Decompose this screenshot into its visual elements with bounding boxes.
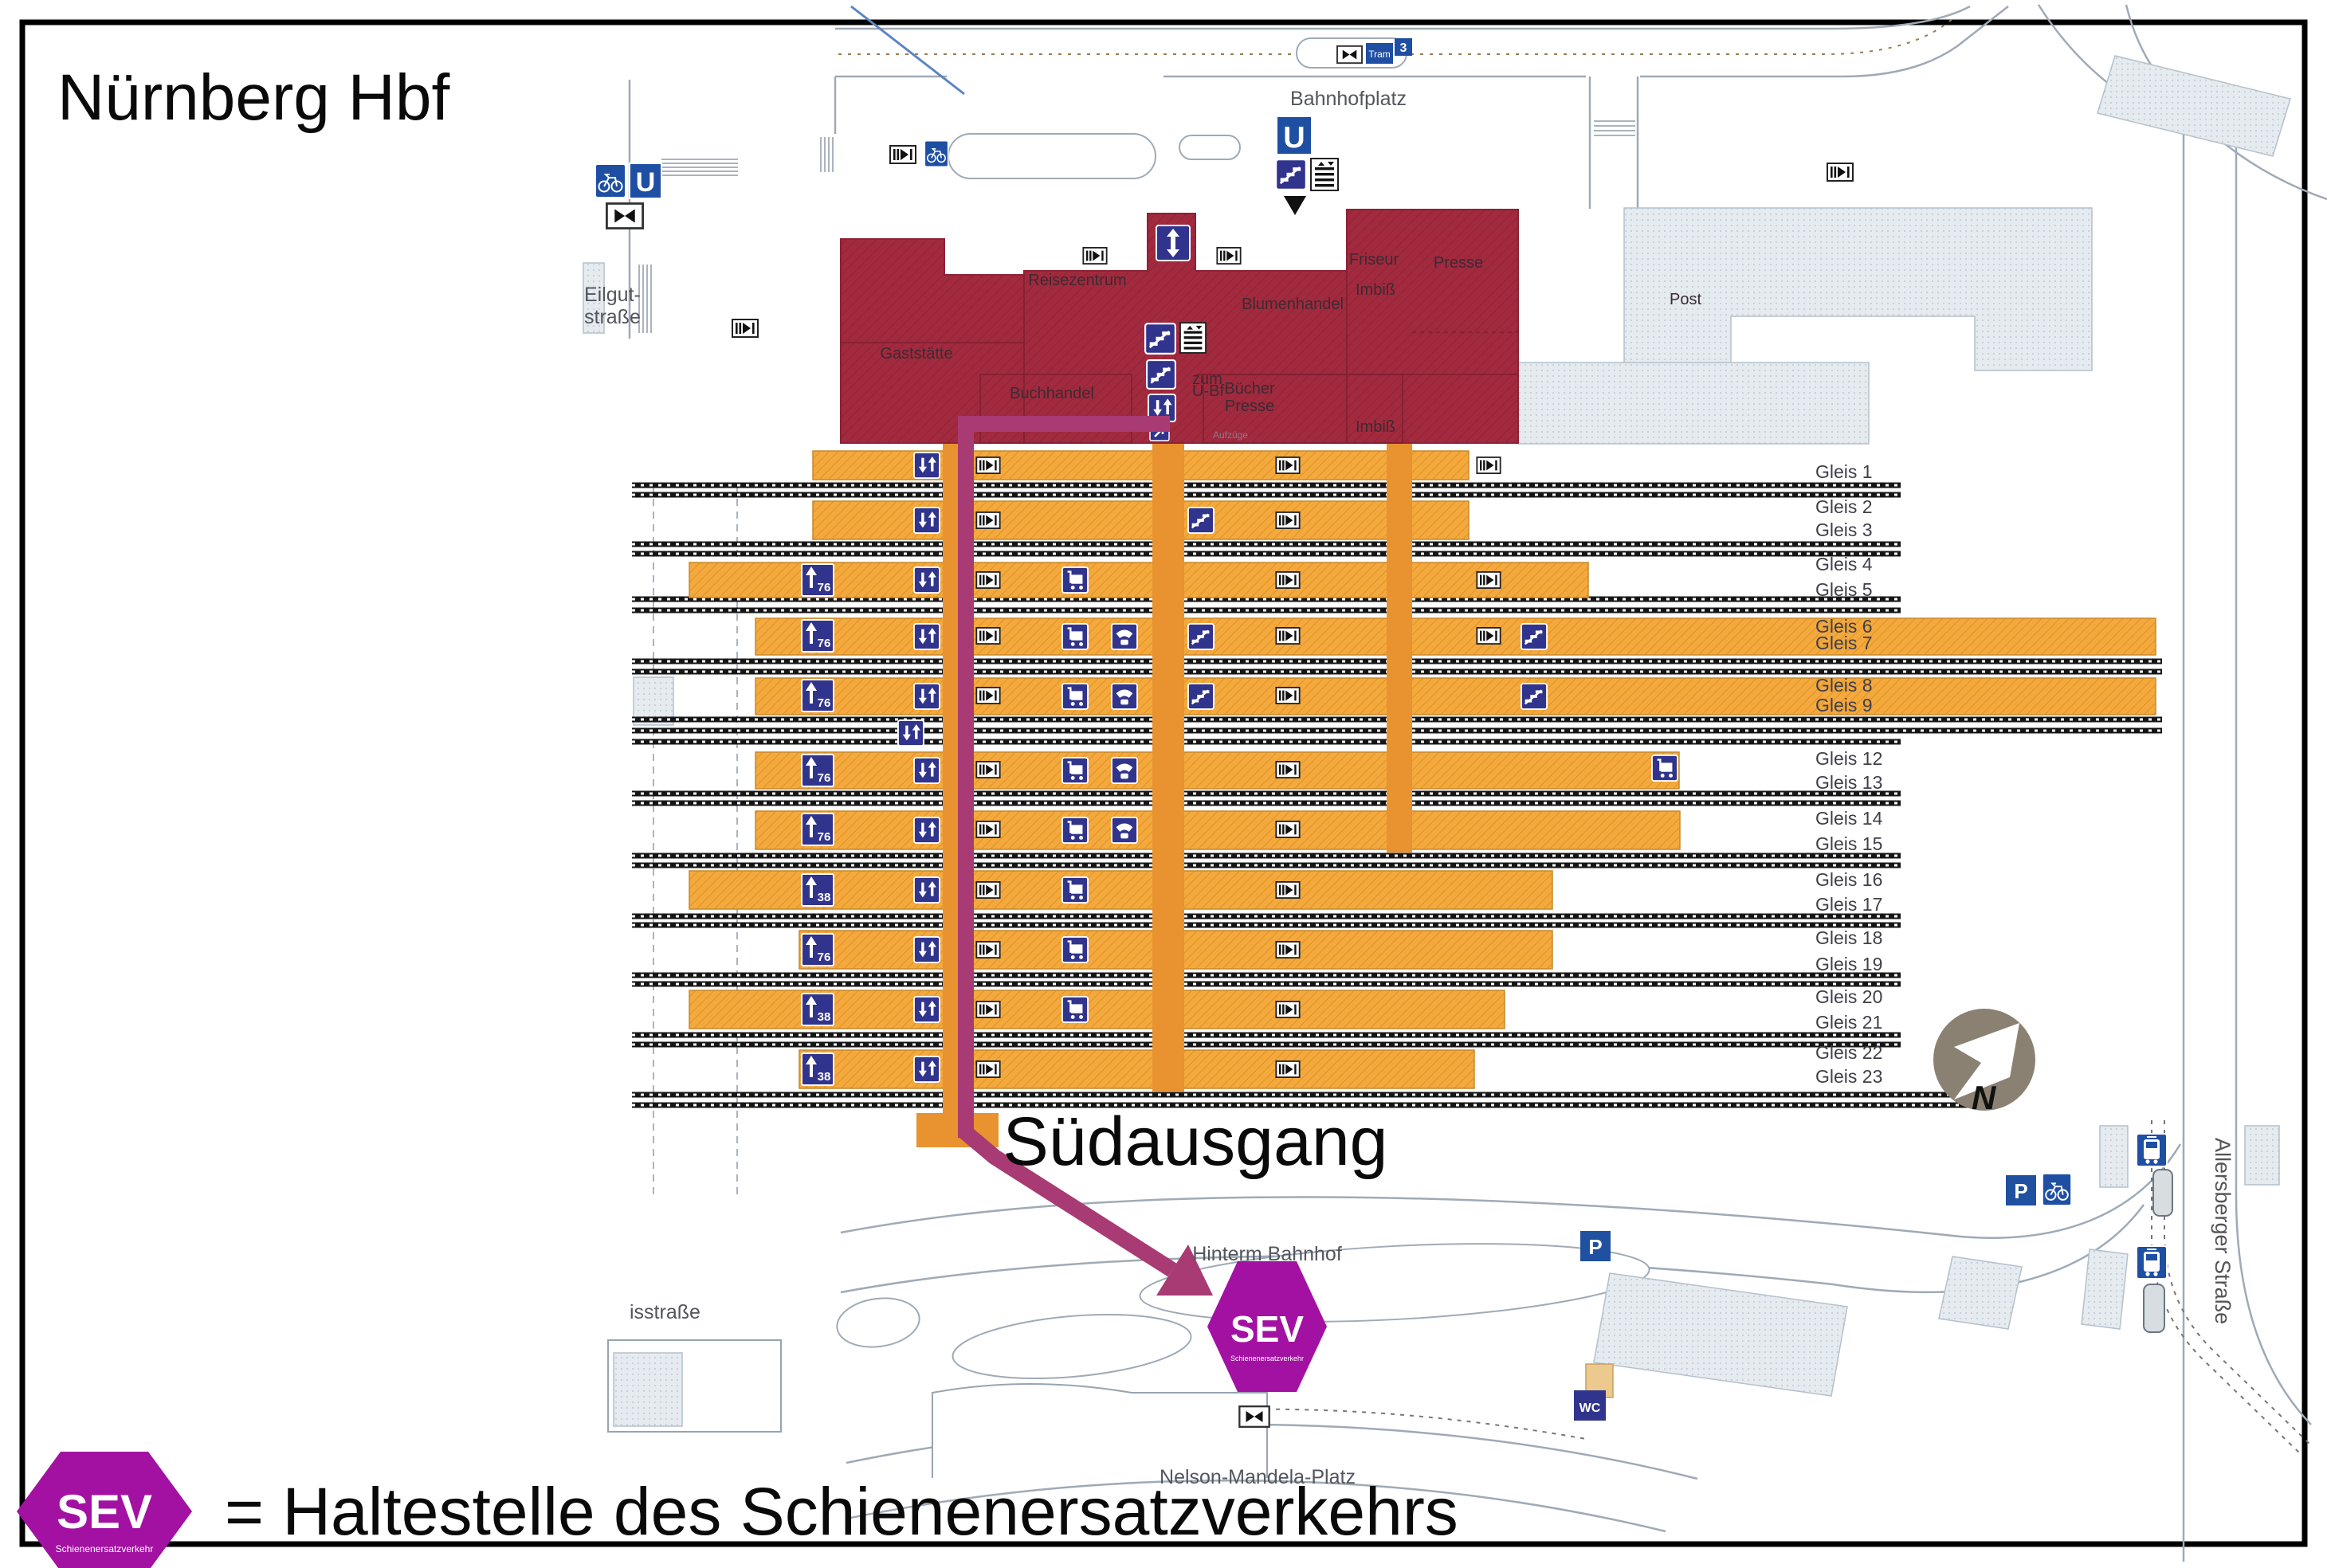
svg-text:Gleis 4: Gleis 4 [1815, 554, 1873, 574]
bike-parking-icon [2043, 1174, 2071, 1205]
street-label-isstrasse: isstraße [630, 1301, 700, 1323]
svg-text:Gleis 7: Gleis 7 [1815, 633, 1873, 653]
entrance-updown-icon [1156, 225, 1190, 261]
svg-text:Gleis 18: Gleis 18 [1815, 927, 1882, 948]
shop-label: Bücher [1224, 380, 1275, 398]
tram-stop-icon [2137, 1246, 2167, 1279]
post-label: Post [1670, 291, 1701, 308]
legend-text: = Haltestelle des Schienenersatzverkehrs [225, 1474, 1458, 1549]
u-bahn-letter: U [1283, 121, 1305, 155]
street-label-eilgut2: straße [584, 306, 641, 328]
svg-text:Gleis 12: Gleis 12 [1815, 748, 1882, 769]
tram-line-number: 3 [1400, 41, 1407, 55]
svg-text:Gleis 2: Gleis 2 [1815, 496, 1873, 517]
buffer-stop-icon [1217, 248, 1240, 264]
station-map: Nürnberg Hbf [0, 0, 2327, 1568]
bike-parking-icon [595, 164, 626, 198]
parking-letter: P [2014, 1179, 2027, 1203]
parking-letter: P [1588, 1235, 1602, 1259]
svg-text:76: 76 [818, 637, 831, 650]
svg-text:38: 38 [818, 1070, 831, 1084]
shop-label: Imbiß [1356, 281, 1395, 299]
tram-crossing-icon [1239, 1406, 1269, 1427]
svg-text:Gleis 8: Gleis 8 [1815, 675, 1873, 696]
tram-crossing-icon [606, 203, 642, 228]
svg-text:Gleis 1: Gleis 1 [1815, 461, 1873, 482]
svg-text:Gleis 21: Gleis 21 [1815, 1012, 1882, 1033]
center-tunnel [1152, 443, 1184, 1092]
buffer-stop-icon [890, 146, 916, 163]
svg-text:Gleis 15: Gleis 15 [1815, 833, 1882, 854]
escalator-icon [1147, 360, 1175, 389]
station-building: Gaststätte Reisezentrum Buchhandel Imbiß… [841, 210, 1518, 443]
page-title: Nürnberg Hbf [57, 61, 449, 134]
svg-text:Gleis 22: Gleis 22 [1815, 1042, 1882, 1063]
shop-label: Imbiß [1356, 418, 1395, 436]
bike-parking-icon [924, 141, 948, 167]
platform-length-signs: 76 76 76 76 76 38 76 38 38 [802, 564, 834, 1085]
svg-text:76: 76 [818, 696, 831, 710]
tram-stop-icon [2137, 1134, 2167, 1166]
legend-sev-sublabel: Schienenersatzverkehr [56, 1543, 154, 1554]
platform-gleis-12-13 [755, 752, 1679, 789]
tiny-label: U-Bf [1192, 382, 1224, 400]
svg-text:Gleis 9: Gleis 9 [1815, 695, 1873, 715]
svg-text:76: 76 [818, 771, 831, 785]
svg-text:Gleis 5: Gleis 5 [1815, 579, 1873, 600]
legend-sev-label: SEV [57, 1485, 152, 1539]
shop-label: Friseur [1349, 251, 1399, 269]
platform-gleis-14-15 [755, 811, 1680, 849]
svg-text:76: 76 [818, 951, 831, 964]
platform-gleis-22-23 [799, 1050, 1474, 1088]
escalator-icon [1145, 323, 1175, 354]
svg-text:38: 38 [818, 891, 831, 904]
compass-north-label: N [1972, 1079, 1997, 1116]
shop-label: Reisezentrum [1028, 272, 1126, 289]
shop-label: Presse [1434, 254, 1483, 272]
tram-vehicle [2144, 1284, 2164, 1332]
sev-stop-sublabel: Schienenersatzverkehr [1230, 1354, 1304, 1362]
svg-text:76: 76 [818, 830, 831, 844]
svg-text:Gleis 23: Gleis 23 [1815, 1066, 1882, 1087]
svg-text:Gleis 17: Gleis 17 [1815, 894, 1882, 915]
platform-gleis-1 [813, 451, 1469, 480]
east-tunnel [1387, 443, 1412, 853]
street-label-bahnhofplatz: Bahnhofplatz [1290, 88, 1407, 110]
svg-text:Gleis 3: Gleis 3 [1815, 519, 1873, 540]
tram-crossing-icon [1337, 46, 1362, 63]
buffer-stop-icon [1827, 163, 1853, 181]
south-exit-label: Südausgang [1003, 1103, 1388, 1180]
stairs-icon [1311, 159, 1338, 190]
platform-gleis-2-3 [813, 501, 1469, 539]
svg-text:Gleis 20: Gleis 20 [1815, 986, 1882, 1007]
tram-vehicle [2153, 1170, 2172, 1216]
station-annex [1518, 363, 1869, 444]
street-label-eilgut: Eilgut- [584, 284, 641, 306]
wc-label: WC [1579, 1401, 1601, 1415]
buffer-stop-icon [1083, 248, 1106, 264]
svg-text:Gleis 13: Gleis 13 [1815, 772, 1882, 793]
shop-label: Buchhandel [1010, 385, 1094, 402]
escalator-icon [1276, 159, 1306, 190]
shop-label: Presse [1225, 398, 1274, 415]
tram-badge-label: Tram [1368, 49, 1391, 60]
svg-text:Gleis 14: Gleis 14 [1815, 808, 1883, 829]
stairs-icon [1180, 323, 1206, 353]
svg-text:Gleis 19: Gleis 19 [1815, 954, 1882, 974]
shop-label: Blumenhandel [1242, 296, 1344, 313]
shop-label: Gaststätte [880, 345, 952, 363]
buffer-stop-icon [732, 319, 758, 337]
sev-stop-label: SEV [1230, 1308, 1304, 1350]
tiny-label: Aufzüge [1213, 429, 1248, 441]
svg-text:Gleis 16: Gleis 16 [1815, 869, 1882, 890]
street-label-allersberger: Allersberger Straße [2211, 1138, 2235, 1324]
svg-text:38: 38 [818, 1010, 831, 1024]
svg-text:76: 76 [818, 581, 831, 594]
u-bahn-letter: U [636, 167, 656, 198]
